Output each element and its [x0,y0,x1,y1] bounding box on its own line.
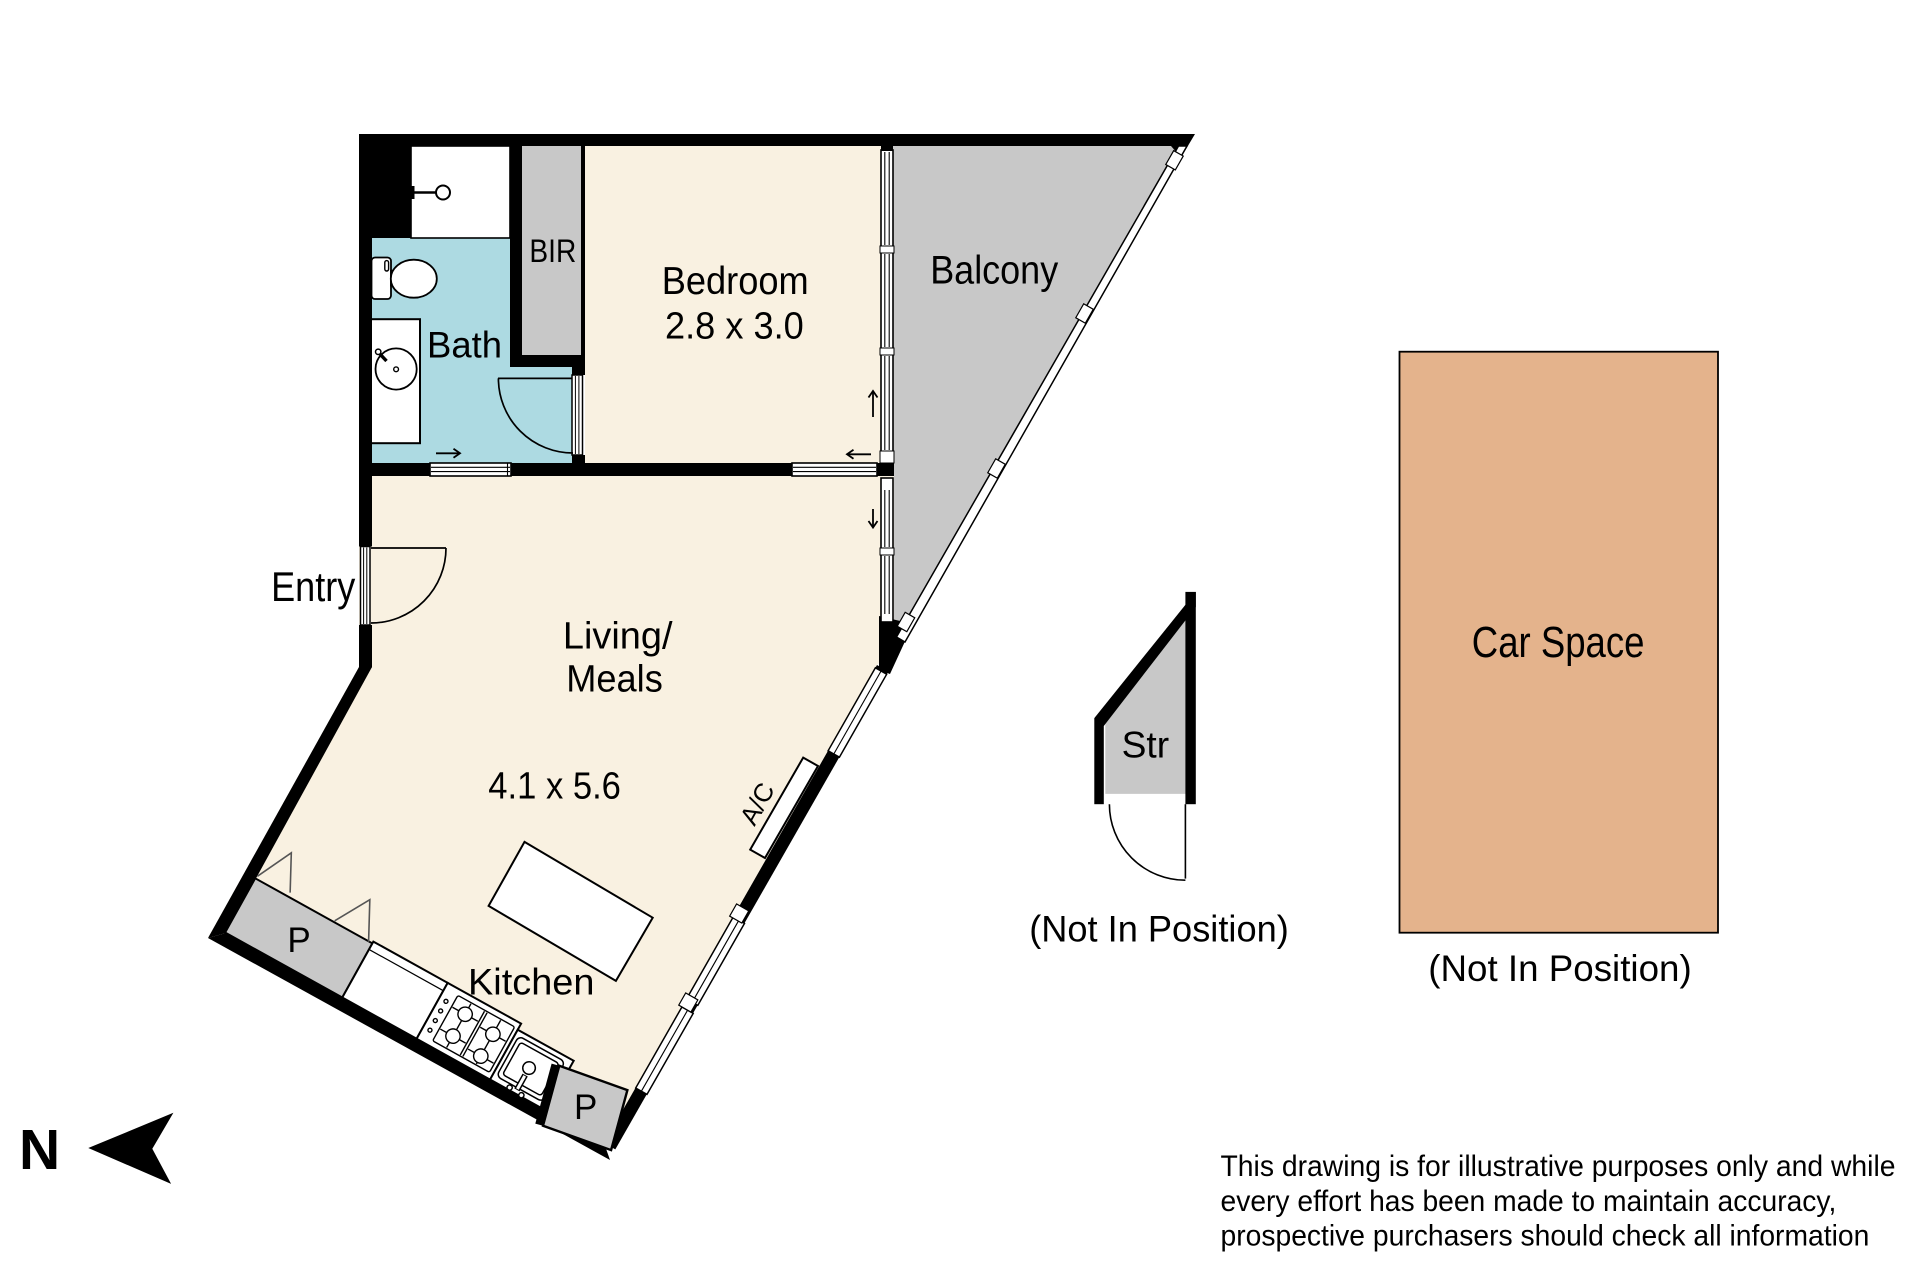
svg-text:P: P [287,921,310,960]
svg-text:Living/: Living/ [563,615,673,657]
svg-text:BIR: BIR [529,233,576,269]
svg-text:(Not In Position): (Not In Position) [1428,947,1691,989]
svg-text:2.8 x 3.0: 2.8 x 3.0 [665,306,804,348]
svg-text:Meals: Meals [566,659,663,701]
svg-text:P: P [574,1088,597,1127]
svg-text:Entry: Entry [271,563,355,610]
svg-text:Bedroom: Bedroom [662,260,809,303]
svg-text:Car Space: Car Space [1472,618,1645,667]
svg-text:prospective purchasers should: prospective purchasers should check all … [1221,1220,1870,1253]
svg-text:Str: Str [1122,724,1170,765]
svg-text:N: N [19,1118,60,1182]
svg-text:(Not In Position): (Not In Position) [1029,909,1289,950]
svg-text:Kitchen: Kitchen [468,962,595,1003]
svg-text:This drawing is for illustrati: This drawing is for illustrative purpose… [1221,1150,1896,1183]
svg-text:4.1 x 5.6: 4.1 x 5.6 [488,766,621,808]
svg-text:Balcony: Balcony [930,248,1058,292]
svg-text:every effort has been made to: every effort has been made to maintain a… [1221,1185,1837,1218]
svg-text:Bath: Bath [427,325,502,366]
